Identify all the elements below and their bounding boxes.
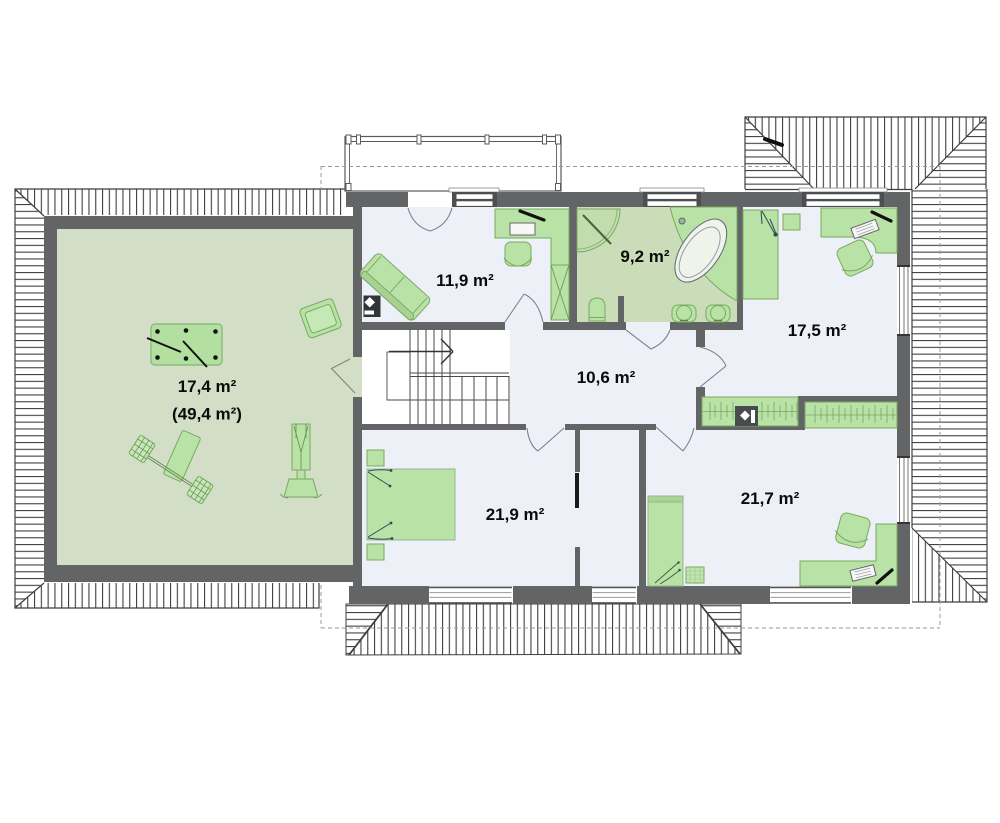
svg-text:17,4 m²: 17,4 m² [178, 377, 237, 396]
svg-text:17,5 m²: 17,5 m² [788, 321, 847, 340]
svg-text:(49,4 m²): (49,4 m²) [172, 405, 242, 424]
svg-text:21,7 m²: 21,7 m² [741, 489, 800, 508]
svg-text:21,9 m²: 21,9 m² [486, 505, 545, 524]
svg-text:10,6 m²: 10,6 m² [577, 368, 636, 387]
svg-text:9,2 m²: 9,2 m² [620, 247, 669, 266]
svg-text:11,9 m²: 11,9 m² [436, 271, 494, 290]
